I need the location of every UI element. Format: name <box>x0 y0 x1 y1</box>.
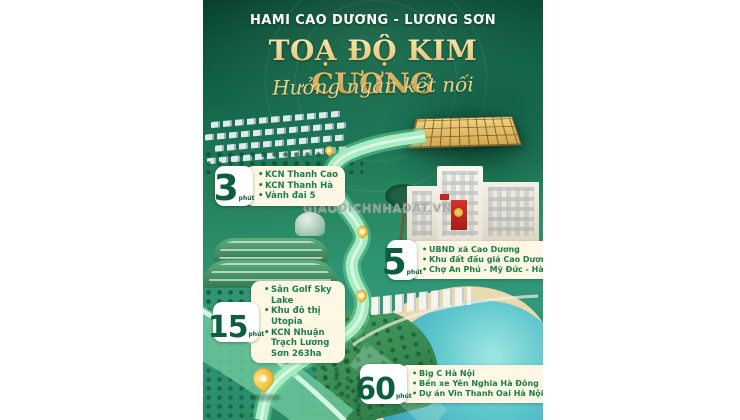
poi-list: UBND xã Cao Dương Khu đất đấu giá Cao Dư… <box>422 245 543 275</box>
time-badge: 15 phút <box>213 302 259 342</box>
minutes-value: 15 <box>208 316 248 339</box>
poi-item: Big C Hà Nội <box>412 369 543 379</box>
travel-time-group-5: 5 phút UBND xã Cao Dương Khu đất đấu giá… <box>387 240 543 280</box>
minutes-value: 5 <box>382 249 406 277</box>
minutes-unit: phút <box>249 331 265 338</box>
minutes-unit: phút <box>239 195 255 202</box>
screenshot-canvas: GIAODICHNHADAT.VN HAMI CAO DƯƠNG - LƯƠNG… <box>0 0 740 420</box>
poi-item: Chợ An Phú - Mỹ Đức - Hà Nội <box>422 265 543 275</box>
time-badge: 60 phút <box>360 364 407 404</box>
poi-list: KCN Thanh Cao KCN Thanh Hà Vành đai 5 <box>258 170 338 202</box>
time-badge: 5 phút <box>387 240 417 280</box>
minutes-unit: phút <box>407 269 423 276</box>
minutes-value: 3 <box>214 175 238 203</box>
pin-shadow <box>251 394 281 401</box>
poi-item: Dự án Vin Thanh Oai Hà Nội <box>412 389 543 399</box>
poi-card: KCN Thanh Cao KCN Thanh Hà Vành đai 5 <box>245 166 345 206</box>
poi-list: Sân Golf Sky Lake Khu đô thị Utopia KCN … <box>264 285 338 359</box>
poi-card: UBND xã Cao Dương Khu đất đấu giá Cao Dư… <box>409 241 543 279</box>
poi-list: Big C Hà Nội Bến xe Yên Nghĩa Hà Đông Dự… <box>412 369 543 399</box>
minutes-unit: phút <box>396 393 412 400</box>
travel-time-group-3: 3 phút KCN Thanh Cao KCN Thanh Hà Vành đ… <box>215 166 345 206</box>
time-badge: 3 phút <box>215 166 253 206</box>
poi-item: Sân Golf Sky Lake <box>264 285 338 306</box>
poi-card: Sân Golf Sky Lake Khu đô thị Utopia KCN … <box>251 281 345 363</box>
minutes-value: 60 <box>355 378 395 401</box>
poi-item: KCN Thanh Hà <box>258 181 338 192</box>
poi-item: KCN Thanh Cao <box>258 170 338 181</box>
poi-item: Khu đô thị Utopia <box>264 306 338 327</box>
travel-time-group-60: 60 phút Big C Hà Nội Bến xe Yên Nghĩa Hà… <box>360 364 543 404</box>
travel-time-group-15: 15 phút Sân Golf Sky Lake Khu đô thị Uto… <box>213 281 345 363</box>
poi-item: KCN Nhuận Trạch Lương Sơn 263ha <box>264 328 338 360</box>
poi-item: Vành đai 5 <box>258 191 338 202</box>
poi-item: Khu đất đấu giá Cao Dương <box>422 255 543 265</box>
poi-item: Bến xe Yên Nghĩa Hà Đông <box>412 379 543 389</box>
poi-item: UBND xã Cao Dương <box>422 245 543 255</box>
poi-card: Big C Hà Nội Bến xe Yên Nghĩa Hà Đông Dự… <box>399 365 543 403</box>
project-name: HAMI CAO DƯƠNG - LƯƠNG SƠN <box>203 13 543 28</box>
poster: GIAODICHNHADAT.VN HAMI CAO DƯƠNG - LƯƠNG… <box>203 0 543 420</box>
